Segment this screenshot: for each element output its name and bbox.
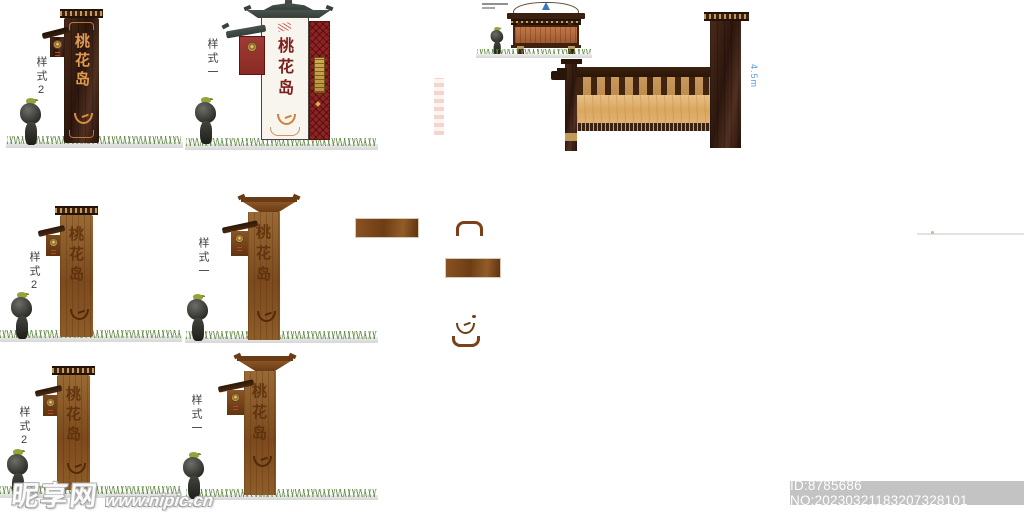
eave-tip	[221, 23, 229, 30]
corner-bracket	[456, 221, 483, 236]
corner-decor	[69, 22, 94, 30]
watermark-site-url: www.nipic.cn	[104, 491, 214, 512]
ink-speck	[472, 315, 476, 318]
gold-plaque	[314, 57, 325, 93]
bird-statue	[186, 294, 212, 341]
sign-text: 桃花岛	[276, 37, 292, 100]
grass	[186, 331, 377, 339]
tiny-red-text	[55, 50, 60, 56]
cap-comb	[52, 366, 95, 375]
tiny-caption-line	[482, 7, 495, 9]
round-emblem	[46, 398, 55, 407]
ground	[476, 54, 592, 58]
bird-statue	[19, 98, 45, 145]
watermark-site-name: 昵享网	[10, 474, 101, 512]
round-emblem	[231, 393, 240, 402]
rafter-band	[577, 77, 710, 95]
style-label: 样式2	[26, 251, 42, 294]
boat-ornament	[252, 455, 270, 467]
grass-speck	[931, 231, 934, 234]
bird-statue	[10, 292, 36, 339]
cap-slab	[241, 197, 297, 202]
sign-text: 桃花岛	[65, 386, 80, 446]
round-emblem	[235, 234, 244, 243]
sign-text: 桃花岛	[251, 383, 266, 446]
bracket-arm	[551, 71, 567, 80]
top-rail	[577, 67, 710, 77]
boat-ornament	[276, 113, 294, 125]
watermark: 昵享网 www.nipic.cn	[10, 474, 216, 512]
grass	[186, 489, 377, 497]
cap-flare	[243, 202, 295, 212]
design-sheet-canvas: 4.5m 样式2 桃花岛	[0, 0, 1024, 512]
corner-bracket	[452, 336, 480, 347]
sign-text: 桃花岛	[255, 224, 270, 287]
bracket-step	[557, 68, 567, 72]
round-emblem	[53, 40, 62, 49]
bottom-rail	[577, 123, 710, 131]
round-emblem	[247, 42, 257, 52]
boat-ornament	[69, 308, 87, 320]
tiny-red-text	[48, 408, 53, 414]
style-label: 样式一	[204, 38, 220, 80]
sign-text: 桃花岛	[68, 226, 83, 286]
wood-panel	[577, 95, 710, 123]
seal-stamp-strip	[434, 78, 444, 135]
cap-comb	[60, 9, 103, 18]
cap-slab	[237, 356, 293, 361]
roof-upper	[262, 3, 315, 11]
peak-ornament	[542, 2, 550, 10]
bird-statue	[194, 97, 220, 144]
style-label: 样式一	[195, 237, 211, 279]
style-label: 样式一	[188, 394, 204, 436]
cap-comb	[55, 206, 98, 215]
round-emblem	[49, 238, 58, 247]
style-label: 样式2	[16, 406, 32, 449]
corner-decor	[69, 130, 94, 138]
board-panel	[513, 25, 579, 45]
boat-ornament	[256, 310, 274, 322]
wood-plank	[445, 258, 501, 278]
id-badge: ID:8785686 NO:20230321183207328101	[790, 481, 1024, 505]
boat-ornament	[455, 320, 477, 334]
tiny-red-text	[237, 245, 242, 251]
dimension-label: 4.5m	[749, 64, 759, 108]
style-label: 样式2	[33, 56, 49, 99]
tiny-red-text	[51, 248, 56, 254]
boat-ornament	[73, 112, 91, 124]
main-pillar	[710, 21, 741, 148]
sign-text: 桃花岛	[74, 33, 89, 90]
boat-ornament	[66, 462, 84, 474]
tiny-caption-line	[482, 3, 508, 5]
post-band	[565, 133, 577, 141]
tiny-red-text	[233, 404, 238, 410]
cap-flare	[239, 361, 291, 371]
corner-decor	[270, 127, 300, 136]
wood-plank	[355, 218, 419, 238]
pillar-cap	[704, 12, 749, 21]
